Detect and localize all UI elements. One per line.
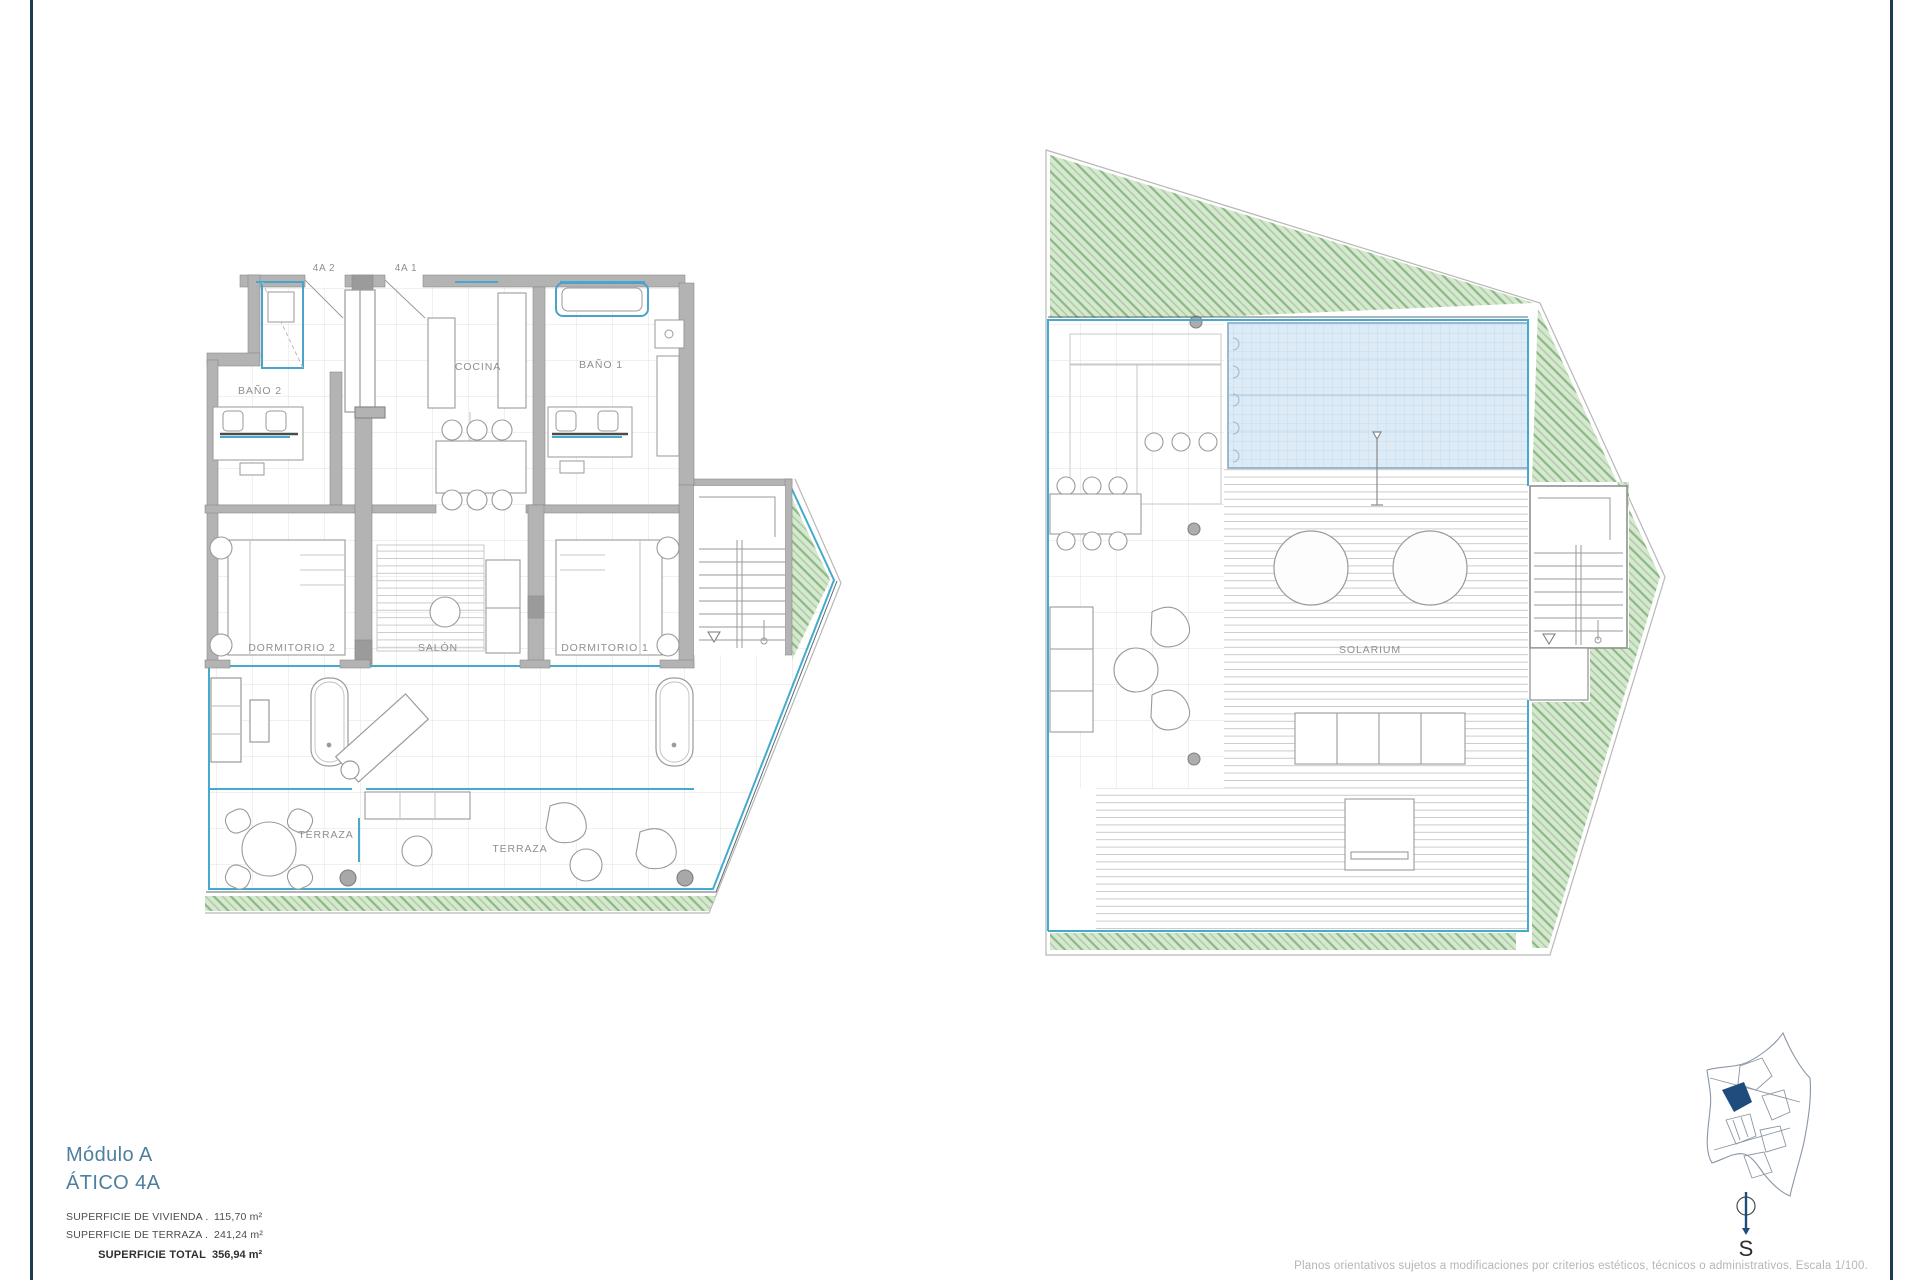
room-label-bano1: BAÑO 1 [579,358,623,371]
compass-label: S [1739,1236,1754,1261]
room-label-terraza-left: TERRAZA [298,829,353,841]
bedroom2-furniture [210,537,345,656]
room-label-terraza-right: TERRAZA [492,843,547,855]
total-value: 356,94 m² [212,1249,326,1261]
area-label: SUPERFICIE DE VIVIENDA [66,1211,202,1223]
site-map [1707,1033,1811,1196]
compass-arrowhead [1742,1228,1750,1235]
grass-top-wedge [1050,155,1534,318]
round-sunbed-left [1274,531,1348,605]
round-sunbed-right [1393,531,1467,605]
room-label-dormitorio2: DORMITORIO 2 [248,642,336,654]
area-value: 241,24 m² [212,1229,326,1241]
total-row: SUPERFICIE TOTAL 356,94 m² [66,1249,326,1261]
room-label-salon: SALÓN [418,641,458,654]
floor-plan-sheet: 4A 2 4A 1 BAÑO 2 COCINA BAÑO 1 DORMITORI… [0,0,1920,1280]
bedroom1-furniture [556,537,679,656]
title-block: Módulo A ÁTICO 4A SUPERFICIE DE VIVIENDA… [66,1144,326,1261]
area-label: SUPERFICIE DE TERRAZA [66,1229,202,1241]
room-label-dormitorio1: DORMITORIO 1 [561,642,649,654]
unit-title: ÁTICO 4A [66,1172,326,1195]
right-roof-plan: SOLARIUM [1046,150,1665,955]
site-map-outline [1707,1033,1811,1196]
leader-dots: . . . . . . . . . [202,1211,212,1223]
total-label: SUPERFICIE TOTAL [66,1249,212,1261]
pool [1228,323,1528,468]
grass-bottom-strip [1050,933,1516,950]
door-label-4a2: 4A 2 [313,263,335,274]
door-label-4a1: 4A 1 [395,263,417,274]
room-label-solarium: SOLARIUM [1339,644,1401,656]
compass: S [1737,1192,1755,1261]
area-row-terraza: SUPERFICIE DE TERRAZA . . . . . . . . . … [66,1229,326,1241]
leader-dots: . . . . . . . . . . [202,1229,212,1241]
salon-furniture [377,545,520,653]
area-row-vivienda: SUPERFICIE DE VIVIENDA . . . . . . . . .… [66,1211,326,1223]
left-floor-plan: 4A 2 4A 1 BAÑO 2 COCINA BAÑO 1 DORMITORI… [205,263,841,913]
room-label-cocina: COCINA [455,361,501,373]
planter-strip [205,896,716,911]
solarium-deck-lower [1096,788,1224,930]
room-label-bano2: BAÑO 2 [238,384,282,397]
disclaimer-text: Planos orientativos sujetos a modificaci… [1294,1260,1868,1272]
area-value: 115,70 m² [212,1211,326,1223]
staircase [694,486,785,655]
module-title: Módulo A [66,1144,326,1167]
